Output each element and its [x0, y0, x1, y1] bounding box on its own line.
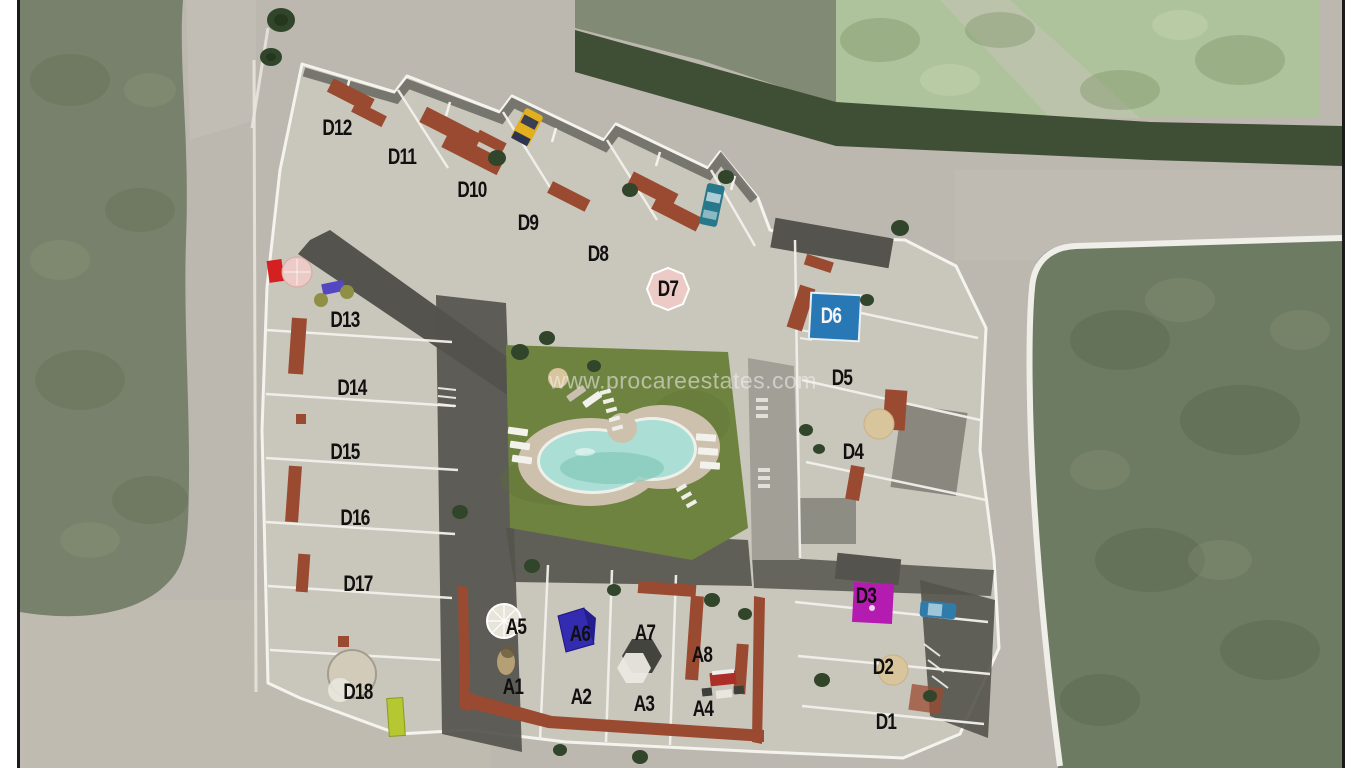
unit-label-D8: D8 [588, 243, 608, 265]
unit-label-D3: D3 [856, 585, 876, 607]
unit-label-D5: D5 [832, 367, 852, 389]
unit-label-D9: D9 [518, 212, 538, 234]
road-tint-top-left [186, 0, 256, 140]
left-border-line [17, 0, 20, 768]
unit-label-A6: A6 [570, 623, 590, 645]
unit-label-D17: D17 [343, 573, 372, 595]
unit-label-A5: A5 [506, 616, 526, 638]
unit-label-A8: A8 [692, 644, 712, 666]
unit-label-D13: D13 [330, 309, 359, 331]
right-border-line [1342, 0, 1345, 768]
unit-label-D6: D6 [821, 305, 841, 327]
left-road-curb [254, 60, 256, 692]
unit-label-D7: D7 [658, 278, 678, 300]
unit-label-D4: D4 [843, 441, 863, 463]
watermark: www.procareestates.com [549, 368, 817, 395]
unit-label-D14: D14 [337, 377, 366, 399]
lime-lounger [387, 697, 406, 736]
field-right [1028, 236, 1342, 768]
unit-label-D16: D16 [340, 507, 369, 529]
unit-label-D2: D2 [873, 656, 893, 678]
unit-label-A2: A2 [571, 686, 591, 708]
tan-parasol-d4 [864, 409, 894, 439]
unit-label-A7: A7 [635, 622, 655, 644]
unit-label-D10: D10 [457, 179, 486, 201]
unit-label-D1: D1 [876, 711, 896, 733]
unit-label-D12: D12 [322, 117, 351, 139]
field-left [20, 0, 189, 616]
unit-label-D11: D11 [388, 146, 416, 168]
unit-label-A1: A1 [503, 676, 523, 698]
unit-label-D18: D18 [343, 681, 372, 703]
pool-deep-end [560, 452, 664, 484]
site-plan-image: www.procareestates.com D12D11D10D9D8D7D6… [0, 0, 1366, 768]
unit-label-D15: D15 [330, 441, 359, 463]
unit-label-A4: A4 [693, 698, 713, 720]
blue-car [919, 600, 956, 619]
unit-label-A3: A3 [634, 693, 654, 715]
satellite-patch [836, 0, 1320, 118]
